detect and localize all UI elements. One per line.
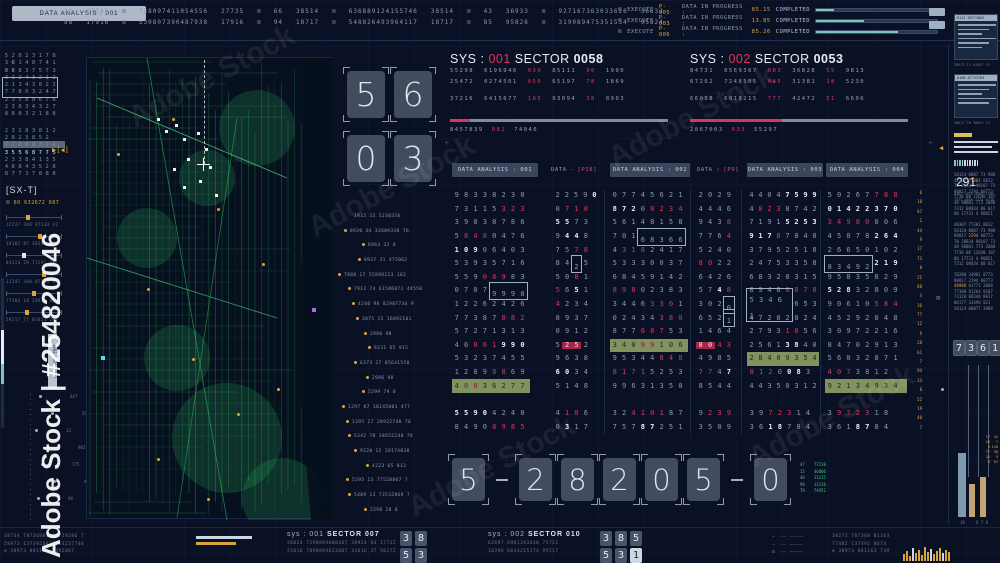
- digit-cell: 5: [619, 355, 628, 362]
- digit-cell: 0: [638, 206, 647, 213]
- digit-cell: 8: [844, 274, 853, 281]
- map-list-item: 6964 32 8: [362, 243, 454, 258]
- flip-digit: 5: [452, 458, 485, 501]
- digit-cell: 2: [572, 264, 581, 271]
- digit-cell: 9: [471, 410, 480, 417]
- digit-cell: 8: [792, 233, 801, 240]
- digit-cell: 1: [794, 410, 803, 417]
- digit-cell: 8: [696, 342, 705, 349]
- digit-cell: 7: [792, 206, 801, 213]
- digit-cell: 1: [648, 383, 657, 390]
- digit-cell: 9: [508, 291, 517, 298]
- slider-row[interactable]: 59217 77 83021 29: [6, 308, 66, 327]
- digit-cell: 2: [810, 383, 819, 390]
- digit-cell: 2: [810, 206, 819, 213]
- digit-cell: 6: [696, 315, 705, 322]
- digit-cell: 6: [638, 328, 647, 335]
- digit-cell: 8: [774, 233, 783, 240]
- digit-cell: 9: [765, 219, 774, 226]
- digit-cell: 3: [990, 272, 992, 277]
- digit-cell: 5: [452, 260, 461, 267]
- bottom-sys-002: sys : 002 SECTOR 01062697 6961343636 757…: [488, 531, 668, 556]
- digit-cell: 9: [648, 342, 657, 349]
- digit-cell: 0: [810, 342, 819, 349]
- slider-row[interactable]: 12247 348 87134 42: [6, 213, 66, 232]
- crosshair-icon: [197, 158, 210, 171]
- digit-cell: 8: [774, 315, 783, 322]
- digit-cell: 7: [610, 424, 619, 431]
- digit-cell: 9: [619, 383, 628, 390]
- map-list-item: 5489 13 73532869 7: [348, 493, 454, 508]
- digit-cell: 3: [480, 260, 489, 267]
- slider-row[interactable]: 12247 348 87134 42: [6, 270, 66, 289]
- digit-cell: 5: [461, 274, 470, 281]
- slider-row[interactable]: 77302 18 29914 83: [6, 289, 66, 308]
- digit-cell: 3: [23, 112, 30, 118]
- data-row: 25613840: [747, 339, 819, 353]
- digit-cell: 3: [891, 342, 900, 349]
- digit-cell: 9: [562, 315, 571, 322]
- digit-cell: 7: [853, 233, 862, 240]
- digit-cell: 1: [490, 328, 499, 335]
- digit-cell: 5: [724, 355, 733, 362]
- digit-cell: 9: [499, 291, 508, 298]
- bottom-right-cluster: 38273 787368 8116377482 137392 8674⊠ 389…: [832, 534, 902, 557]
- digit-cell: 0: [619, 233, 628, 240]
- digit-cell: 4: [629, 410, 638, 417]
- digit-cell: 3: [508, 192, 517, 199]
- data-row: 32410187: [610, 407, 688, 421]
- digit-cell: 8: [853, 219, 862, 226]
- digit-cell: 5: [705, 424, 714, 431]
- digit-cell: 3: [783, 342, 792, 349]
- digit-cell: 5: [452, 328, 461, 335]
- digit-cell: 9: [471, 274, 480, 281]
- data-row: 40036277: [452, 379, 530, 393]
- digit-cell: 0: [676, 315, 685, 322]
- digit-cell: 3: [657, 383, 666, 390]
- digit-cell: 7: [872, 192, 881, 199]
- digit-cell: 8: [581, 233, 590, 240]
- digit-cell: 0: [471, 219, 480, 226]
- digit-cell: 9: [461, 219, 470, 226]
- digit-cell: 2: [844, 192, 853, 199]
- data-column-3: 0774562187208234561481587016836643182417…: [610, 189, 688, 434]
- digit-cell: 7: [785, 424, 794, 431]
- digit-cell: 8: [783, 206, 792, 213]
- data-row: 5240: [696, 243, 738, 257]
- digit-cell: 2: [657, 206, 666, 213]
- data-column-1: 9833823073115323390387865848047610906403…: [452, 189, 530, 434]
- digit-cell: 1: [562, 410, 571, 417]
- map-marker: [157, 118, 160, 121]
- digit-cell: 8: [610, 328, 619, 335]
- digit-cell: 3: [499, 206, 508, 213]
- digit-cell: 4: [810, 355, 819, 362]
- digit-cell: 2: [562, 301, 571, 308]
- map-list-item: 8920 34 33609338 76: [344, 229, 454, 244]
- digit-cell: 4: [756, 192, 765, 199]
- digit-cell: 3: [480, 383, 489, 390]
- sidebar-node-timeline: 8472986139021775440798: [30, 394, 70, 524]
- digit-cell: 2: [863, 287, 872, 294]
- digit-cell: 8: [572, 274, 581, 281]
- digit-cell: 0: [480, 410, 489, 417]
- map-list-item: 5295 13 77528807 7: [346, 478, 454, 493]
- digit-cell: 3: [825, 328, 834, 335]
- digit-cell: 5: [553, 274, 562, 281]
- digit-cell: 1: [676, 424, 685, 431]
- digit-cell: 2: [471, 355, 480, 362]
- digit-cell: 1: [756, 233, 765, 240]
- digit-cell: 4: [490, 410, 499, 417]
- digit-cell: 2: [715, 301, 724, 308]
- digit-cell: 4: [562, 233, 571, 240]
- digit-cell: 6: [724, 274, 733, 281]
- digit-cell: 4: [891, 383, 900, 390]
- digit-cell: 9: [638, 342, 647, 349]
- sidebar-grid-row: 88832188: [3, 102, 65, 109]
- digit-cell: 0: [553, 424, 562, 431]
- digit-cell: 8: [553, 315, 562, 322]
- digit-cell: 1: [766, 424, 775, 431]
- digit-cell: 8: [648, 237, 657, 244]
- grid-header-6[interactable]: DATA ANALYSIS : 004: [826, 163, 908, 177]
- digit-cell: 8: [10, 112, 17, 118]
- digit-cell: 9: [747, 233, 756, 240]
- data-row: 4073812: [825, 366, 907, 380]
- digit-cell: 4: [825, 369, 834, 376]
- data-row: 9638: [553, 352, 599, 366]
- progress-bar: [815, 19, 938, 23]
- digit-cell: 2: [792, 219, 801, 226]
- digit-cell: 3: [993, 239, 995, 244]
- digit-cell: 0: [765, 192, 774, 199]
- digit-cell: 8: [619, 274, 628, 281]
- digit-cell: 9: [648, 274, 657, 281]
- digit-cell: 2: [461, 369, 470, 376]
- grid-header-3[interactable]: DATA ANALYSIS : 002: [610, 163, 690, 177]
- digit-cell: 2: [747, 328, 756, 335]
- digit-cell: 4: [676, 206, 685, 213]
- grid-header-5[interactable]: DATA ANALYSIS : 003: [747, 163, 823, 177]
- digit-cell: 3: [629, 260, 638, 267]
- digit-cell: 0: [705, 301, 714, 308]
- digit-cell: 4: [553, 301, 562, 308]
- digit-cell: 1: [881, 328, 890, 335]
- digit-cell: 6: [676, 237, 685, 244]
- slider-row[interactable]: 39102 87 38240 77: [6, 232, 66, 251]
- flip-digit: 1: [990, 341, 1000, 355]
- digit-cell: 8: [666, 410, 675, 417]
- digit-cell: 7: [676, 260, 685, 267]
- data-row: 70168366: [610, 230, 688, 244]
- rail-dot: [941, 388, 944, 391]
- data-row: 5573: [553, 216, 599, 230]
- digit-cell: 5: [666, 219, 675, 226]
- bottom-sys-001: sys : 001 SECTOR 00726024 7298894600267 …: [287, 531, 467, 556]
- terminal-window-1[interactable]: 0112 88773802: [954, 14, 998, 60]
- digit-cell: 5: [774, 247, 783, 254]
- digit-cell: 2: [834, 287, 843, 294]
- data-column-2: 2259007105573944875788425508156514234893…: [553, 189, 599, 434]
- digit-cell: 7: [993, 206, 995, 211]
- digit-cell: 5: [553, 342, 562, 349]
- mini-flip-digit: 3: [600, 531, 612, 546]
- sys-data-row: 67262724850504531381185230: [690, 79, 908, 88]
- digit-cell: 8: [508, 219, 517, 226]
- digit-cell: 8: [461, 192, 470, 199]
- digit-cell: 7: [676, 247, 685, 254]
- digit-cell: 1: [801, 383, 810, 390]
- sidebar-grid-row: 36148741: [3, 51, 65, 58]
- digit-cell: 4: [715, 247, 724, 254]
- digit-cell: 2: [724, 260, 733, 267]
- digit-cell: 2: [648, 247, 657, 254]
- digit-cell: 3: [610, 410, 619, 417]
- map-list-item: 1297 87 18145001 477: [342, 405, 454, 420]
- grid-header-1[interactable]: DATA ANALYSIS : 001: [452, 163, 538, 177]
- digit-cell: 3: [696, 424, 705, 431]
- digit-cell: 5: [619, 424, 628, 431]
- sidebar-grid-row: 23588678: [3, 88, 65, 95]
- digit-cell: 5: [638, 274, 647, 281]
- digit-cell: 7: [756, 315, 765, 322]
- digit-cell: 0: [666, 301, 675, 308]
- digit-cell: 4: [844, 206, 853, 213]
- bottom-dash-rows: – ·– ––––– ·– ––––⊡ ·– ––––: [772, 534, 804, 557]
- digit-cell: 5: [452, 274, 461, 281]
- digit-cell: 1: [581, 274, 590, 281]
- top-bar: DATA ANALYSIS : 001 2627735⊠738097411054…: [0, 0, 1000, 41]
- sidebar-sliders: 12247 348 87134 4239102 87 38240 7784113…: [6, 213, 66, 327]
- digit-cell: 9: [801, 192, 810, 199]
- digit-cell: 6: [553, 369, 562, 376]
- digit-cell: 6: [562, 287, 571, 294]
- digit-cell: 0: [881, 287, 890, 294]
- digit-cell: 8: [724, 219, 733, 226]
- terminal-window-2[interactable]: 0108 87733764: [954, 74, 998, 118]
- text-block-2: 48307 77301 881258124 0887 73 98888017 2…: [954, 222, 998, 267]
- digit-cell: 6: [480, 342, 489, 349]
- digit-cell: 0: [490, 233, 499, 240]
- digit-cell: 3: [676, 328, 685, 335]
- digit-cell: 5: [518, 355, 527, 362]
- digit-cell: 6: [666, 237, 675, 244]
- data-row: 5081: [553, 271, 599, 285]
- digit-cell: 4: [499, 355, 508, 362]
- digit-cell: 5: [834, 233, 843, 240]
- digit-cell: 1: [774, 342, 783, 349]
- digit-cell: 2: [881, 274, 890, 281]
- digit-cell: 7: [853, 328, 862, 335]
- data-row: 6426: [696, 271, 738, 285]
- digit-cell: 3: [853, 369, 862, 376]
- digit-cell: 4: [461, 424, 470, 431]
- digit-cell: 2: [705, 247, 714, 254]
- top-number-row: 2627735⊠73809741105455627735⊠6638514⊠636…: [64, 6, 614, 17]
- data-row: 12898869: [452, 366, 530, 380]
- sys-title: SYS : 001 SECTOR 0058: [450, 52, 668, 66]
- digit-cell: 3: [825, 424, 834, 431]
- digit-cell: 2: [863, 264, 872, 271]
- digit-cell: 0: [834, 192, 843, 199]
- rail-chip[interactable]: [929, 21, 945, 29]
- data-row: 4106: [553, 407, 599, 421]
- digit-cell: 1: [891, 355, 900, 362]
- digit-cell: 1: [471, 206, 480, 213]
- digit-cell: 8: [610, 287, 619, 294]
- digit-cell: 7: [480, 328, 489, 335]
- digit-cell: 1: [572, 328, 581, 335]
- digit-cell: 8: [581, 355, 590, 362]
- digit-cell: 9: [891, 274, 900, 281]
- data-row: 07079990: [452, 284, 530, 298]
- digit-cell: 4: [471, 233, 480, 240]
- digit-cell: 0: [471, 287, 480, 294]
- data-row: 3618784: [825, 421, 907, 435]
- digit-cell: 8: [853, 424, 862, 431]
- digit-cell: 0: [666, 342, 675, 349]
- map-data-list: 1915 15 52303568920 34 33609338 766964 3…: [336, 214, 454, 522]
- digit-cell: 2: [619, 410, 628, 417]
- sx-t-label: [SX-T]: [6, 185, 38, 195]
- sys-title: SYS : 002 SECTOR 0053: [690, 52, 908, 66]
- digit-cell: 9: [705, 355, 714, 362]
- digit-cell: 4: [581, 369, 590, 376]
- timeline-node: 98: [68, 496, 73, 501]
- data-row: 01422370: [825, 203, 907, 217]
- digit-cell: 3: [638, 260, 647, 267]
- digit-cell: 2: [562, 192, 571, 199]
- digit-cell: 4: [638, 219, 647, 226]
- digit-cell: 5: [562, 219, 571, 226]
- digit-cell: 3: [825, 410, 834, 417]
- digit-cell: 8: [638, 247, 647, 254]
- digit-cell: 7: [993, 250, 995, 255]
- map-list-item: 9231 65 915: [368, 346, 454, 361]
- digit-cell: 4: [774, 192, 783, 199]
- data-row: 9239: [696, 407, 738, 421]
- sys-progress-bar: [450, 119, 668, 122]
- map-list-item: 4240 98 82987734 9: [352, 302, 454, 317]
- digit-cell: 1: [480, 206, 489, 213]
- digit-cell: 8: [891, 192, 900, 199]
- digit-cell: 7: [499, 260, 508, 267]
- map-marker: [187, 158, 190, 161]
- digit-cell: 5: [756, 342, 765, 349]
- digit-cell: 6: [629, 383, 638, 390]
- digit-cell: 3: [471, 315, 480, 322]
- digit-cell: 7: [881, 355, 890, 362]
- digit-cell: 4: [508, 410, 517, 417]
- digit-cell: 3: [480, 355, 489, 362]
- digit-cell: 5: [810, 274, 819, 281]
- digit-cell: 4: [610, 247, 619, 254]
- digit-cell: 3: [993, 183, 995, 188]
- map-cyan-marker: [101, 356, 105, 360]
- digit-cell: 1: [452, 369, 461, 376]
- digit-cell: 6: [715, 233, 724, 240]
- digit-cell: 8: [648, 206, 657, 213]
- digit-cell: 7: [581, 424, 590, 431]
- rail-chip[interactable]: [929, 8, 945, 16]
- digit-cell: 4: [825, 233, 834, 240]
- mini-flip-digit: 1: [630, 548, 642, 563]
- mini-bar-chart: 172897731844712038961188 7 8: [954, 365, 998, 525]
- digit-cell: 7: [844, 342, 853, 349]
- digit-cell: 8: [581, 383, 590, 390]
- digit-cell: 5: [452, 410, 461, 417]
- map-marker: [175, 124, 178, 127]
- digit-cell: 5: [610, 219, 619, 226]
- digit-cell: 8: [792, 342, 801, 349]
- digit-cell: 3: [810, 219, 819, 226]
- digit-cell: 4: [648, 315, 657, 322]
- execute-row: ⊠EXECUTEP-006DATA IN PROGRESS :85.26COMP…: [618, 26, 938, 37]
- digit-cell: 1: [988, 300, 990, 305]
- digit-cell: 7: [619, 328, 628, 335]
- digit-cell: 9: [853, 264, 862, 271]
- digit-cell: 2: [518, 315, 527, 322]
- digit-cell: 9: [471, 247, 480, 254]
- flip-counter-5-28205-0: 5282050: [452, 458, 787, 501]
- digit-cell: 0: [715, 424, 724, 431]
- data-row: 02434380: [610, 311, 688, 325]
- digit-cell: 3: [853, 355, 862, 362]
- digit-cell: 5: [553, 383, 562, 390]
- sidebar-grid-row: 23834327: [3, 95, 65, 102]
- digit-cell: 9: [696, 410, 705, 417]
- digit-cell: 9: [810, 192, 819, 199]
- data-row: 9448: [553, 230, 599, 244]
- digit-cell: 5: [571, 192, 580, 199]
- digit-cell: 0: [792, 315, 801, 322]
- digit-cell: 2: [657, 424, 666, 431]
- data-row: 44047599: [747, 189, 819, 203]
- data-row: 5252: [553, 339, 599, 353]
- digit-cell: 4: [715, 287, 724, 294]
- data-row: 98338230: [452, 189, 530, 203]
- digit-cell: 3: [785, 410, 794, 417]
- digit-cell: 2: [825, 247, 834, 254]
- city-map-panel[interactable]: [86, 57, 332, 519]
- digit-cell: 2: [765, 315, 774, 322]
- digit-cell: 2: [619, 315, 628, 322]
- digit-cell: 7: [17, 172, 24, 178]
- digit-cell: 6: [480, 301, 489, 308]
- digit-cell: 8: [881, 410, 890, 417]
- digit-cell: 6: [508, 369, 517, 376]
- digit-cell: 8: [499, 315, 508, 322]
- digit-cell: 0: [834, 301, 843, 308]
- digit-cell: 9: [508, 342, 517, 349]
- digit-cell: 1: [619, 369, 628, 376]
- slider-row[interactable]: 84113 29 77291 18: [6, 251, 66, 270]
- digit-cell: 8: [553, 260, 562, 267]
- digit-cell: 6: [518, 233, 527, 240]
- digit-cell: 4: [747, 206, 756, 213]
- digit-cell: 6: [792, 301, 801, 308]
- digit-cell: 5: [834, 274, 843, 281]
- digit-cell: 3: [715, 410, 724, 417]
- digit-cell: 3: [518, 206, 527, 213]
- data-row: 07745621: [610, 189, 688, 203]
- data-row: 45292048: [825, 311, 907, 325]
- data-row: 4234: [553, 298, 599, 312]
- digit-cell: 5: [792, 192, 801, 199]
- sys-footer: 845783908174046: [450, 127, 668, 133]
